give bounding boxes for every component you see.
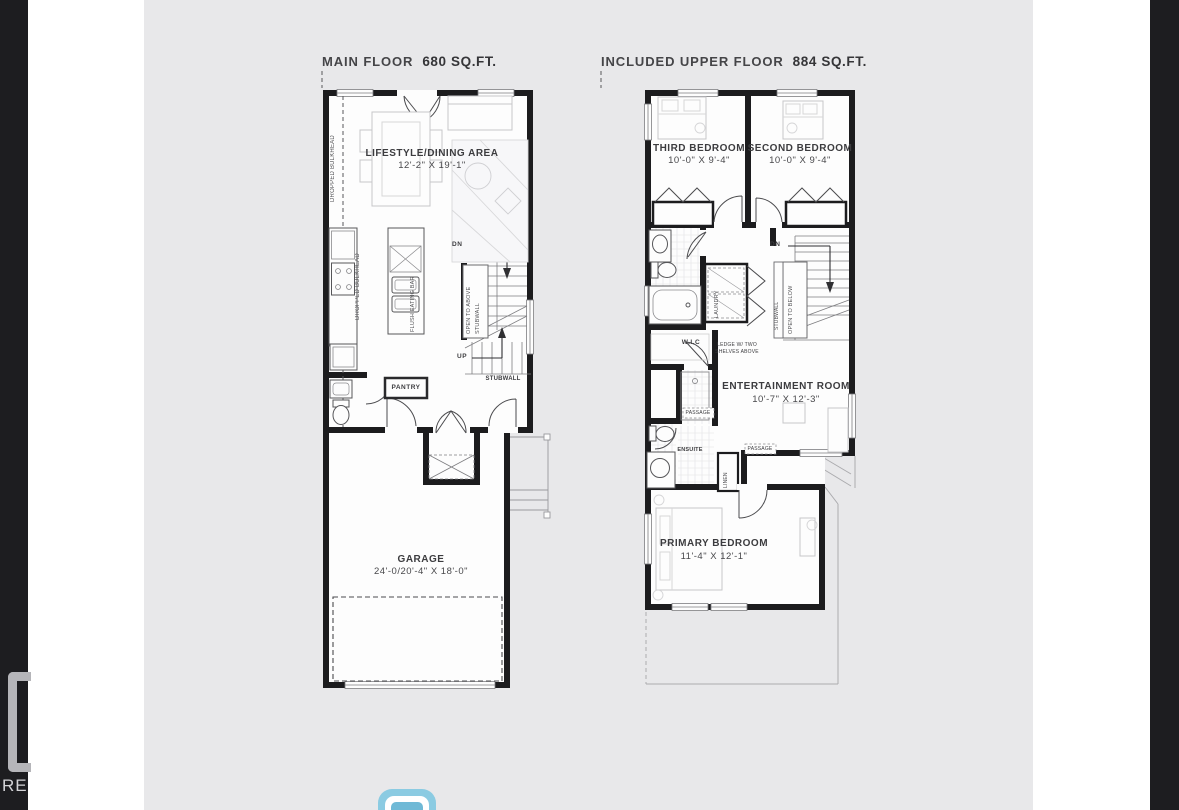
room-dims-garage: 24'-0/20'-4" X 18'-0"	[374, 566, 468, 577]
watermark-logo-bracket	[8, 672, 31, 772]
room-dims-primary-bedroom: 11'-4" X 12'-1"	[681, 551, 748, 562]
room-dims-second-bedroom: 10'-0" X 9'-4"	[769, 155, 831, 166]
app-logo-icon-core	[391, 802, 423, 810]
annotation-stubwall-horizontal-main: STUBWALL	[486, 376, 521, 382]
annotation-up-main: UP	[457, 353, 467, 360]
room-label-linen: LINEN	[723, 458, 729, 488]
main-floor-title: MAIN FLOOR680 SQ.FT.	[322, 53, 497, 71]
room-dims-entertainment: 10'-7" X 12'-3"	[752, 394, 820, 405]
watermark-partial-text: RE	[2, 776, 28, 796]
room-dims-third-bedroom: 10'-0" X 9'-4"	[668, 155, 730, 166]
app-logo-icon-ring	[385, 796, 429, 810]
room-label-pantry: PANTRY	[392, 384, 421, 391]
annotation-shelf-note-line1: LEDGE W/ TWO	[717, 342, 757, 348]
room-label-garage: GARAGE	[398, 554, 445, 565]
upper-floor-area-text: 884 SQ.FT.	[793, 54, 867, 69]
annotation-open-to-above: OPEN TO ABOVE	[466, 270, 472, 334]
annotation-stubwall-upper: STUBWALL	[774, 278, 780, 330]
floorplan-page: { "colors": { "panel_bg": "#e8e8ea", "ed…	[0, 0, 1179, 810]
room-label-second-bedroom: SECOND BEDROOM	[748, 143, 853, 154]
floorplan-linework	[0, 0, 1179, 810]
room-label-laundry: LAUNDRY	[714, 276, 720, 318]
annotation-shelf-note-line2: SHELVES ABOVE	[715, 349, 759, 355]
room-label-wic: W.I.C	[682, 339, 700, 346]
room-dims-lifestyle: 12'-2" X 19'-1"	[398, 160, 466, 171]
main-floor-area-text: 680 SQ.FT.	[422, 54, 496, 69]
app-logo-icon	[378, 789, 436, 810]
room-label-ensuite: ENSUITE	[677, 447, 702, 453]
upper-floor-title: INCLUDED UPPER FLOOR884 SQ.FT.	[601, 53, 867, 71]
room-label-entertainment: ENTERTAINMENT ROOM	[722, 381, 850, 392]
room-label-lifestyle: LIFESTYLE/DINING AREA	[366, 148, 499, 159]
main-floor-title-text: MAIN FLOOR	[322, 54, 413, 69]
room-label-primary-bedroom: PRIMARY BEDROOM	[660, 538, 768, 549]
annotation-dropped-bulkhead-2: DROPPED BULKHEAD	[355, 248, 361, 320]
annotation-dn-main: DN	[452, 241, 462, 248]
annotation-flush-eating-bar: FLUSH EATING BAR	[410, 250, 416, 332]
annotation-dn-upper: DN	[770, 241, 780, 248]
room-label-third-bedroom: THIRD BEDROOM	[653, 143, 745, 154]
upper-floor-title-text: INCLUDED UPPER FLOOR	[601, 54, 784, 69]
annotation-dropped-bulkhead-1: DROPPED BULKHEAD	[330, 128, 336, 202]
annotation-open-to-below: OPEN TO BELOW	[788, 272, 794, 334]
annotation-passage-2: PASSAGE	[748, 446, 773, 452]
annotation-stubwall-vertical-main: STUBWALL	[475, 278, 481, 334]
annotation-passage-1: PASSAGE	[686, 410, 711, 416]
